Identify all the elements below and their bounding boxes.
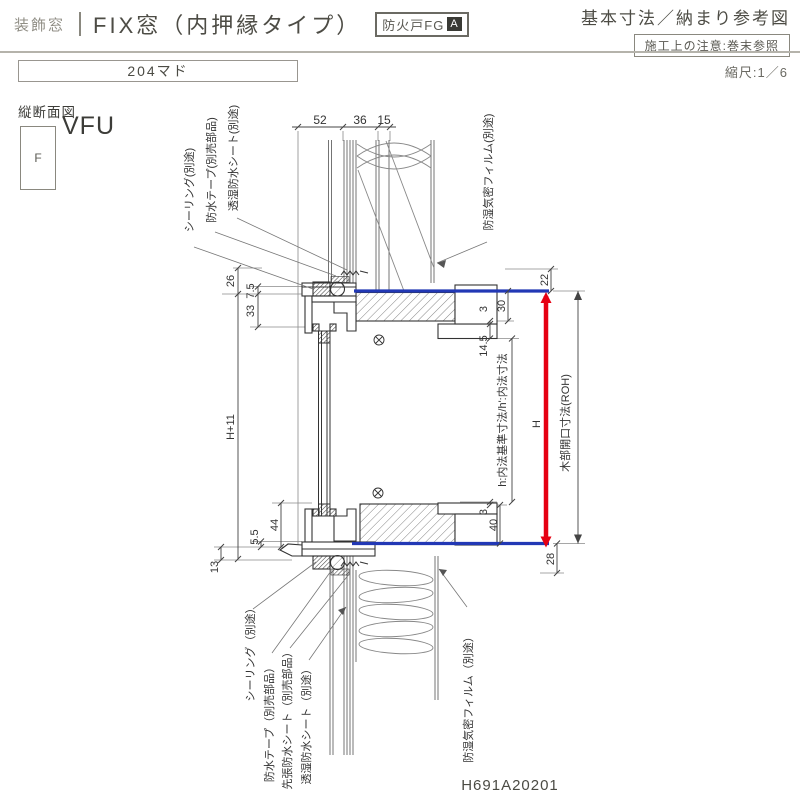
- callout-waterproof-tape-top: 防水テープ(別売部品): [204, 117, 218, 223]
- callout-breathable-sheet-top: 透湿防水シート(別途): [226, 105, 240, 211]
- window-frame-head: [302, 271, 497, 339]
- callout-sealing-top: シーリング(別途): [182, 148, 196, 232]
- callout-sealing-bottom: シーリング（別途）: [243, 603, 257, 702]
- callout-breathable-sheet-bottom: 透湿防水シート（別途）: [299, 664, 313, 785]
- dim-52: 52: [313, 113, 327, 127]
- backer-rod-top: [331, 282, 345, 296]
- glazing: [319, 331, 331, 516]
- dim-26: 26: [225, 275, 237, 287]
- callout-waterproof-tape-bottom: 防水テープ（別売部品）: [262, 662, 276, 782]
- dim-3-top: 3: [478, 306, 490, 312]
- dim-14-5: 14.5: [478, 335, 490, 356]
- dim-5-5: 5.5: [249, 529, 261, 544]
- section-drawing: 52 36 15 26 7.5 33 H+11 44 5.5 13 22 30 …: [0, 0, 800, 800]
- wall-section-bottom: [330, 556, 438, 755]
- dim-22: 22: [539, 274, 551, 286]
- sill-glazing-bead: [334, 509, 356, 541]
- callout-vapor-film-bottom: 防湿気密フィルム（別途）: [461, 631, 475, 763]
- dim-44: 44: [269, 519, 281, 531]
- dim-7-5: 7.5: [245, 283, 257, 298]
- dim-13: 13: [209, 561, 221, 573]
- dim-h-plus-11: H+11: [225, 414, 237, 440]
- insulation-top: [357, 143, 431, 169]
- dim-40: 40: [488, 519, 500, 531]
- drawing-number: H691A20201: [461, 777, 559, 794]
- rough-opening-label: 木部開口寸法(ROH): [558, 374, 572, 472]
- seal-top: [313, 282, 330, 296]
- dim-28: 28: [545, 553, 557, 565]
- page: 装飾窓 FIX窓（内押縁タイプ） 防火戸FG A 基本寸法／納まり参考図 施工上…: [0, 0, 800, 800]
- dim-30: 30: [496, 300, 508, 312]
- callout-vapor-film-top: 防湿気密フィルム(別途): [481, 114, 495, 231]
- screw-bottom: [341, 562, 368, 566]
- tape-top: [331, 277, 349, 283]
- dim-15: 15: [377, 113, 391, 127]
- sill-drip-edge: [280, 544, 302, 556]
- screw-top: [341, 271, 368, 275]
- dim-33: 33: [245, 305, 257, 317]
- inner-height-label: h:内法基準寸法/h':内法寸法: [495, 353, 509, 487]
- glass-spacer-top: [319, 331, 331, 343]
- dim-height-h: H: [531, 420, 543, 428]
- bead-screws: [373, 335, 384, 498]
- glass-spacer-bottom: [319, 504, 331, 516]
- dim-36: 36: [353, 113, 367, 127]
- callout-pre-applied-sheet-bottom: 先張防水シート（別売部品）: [280, 647, 294, 790]
- tape-bottom: [331, 569, 349, 575]
- backer-rod-bottom: [331, 556, 345, 570]
- opening-height-arrow: [541, 292, 552, 548]
- insulation-bottom: [359, 569, 434, 656]
- wall-section-top: [329, 140, 435, 292]
- head-wood-frame: [356, 293, 455, 322]
- head-glazing-bead: [334, 302, 356, 331]
- dim-3-bottom: 3: [478, 509, 490, 515]
